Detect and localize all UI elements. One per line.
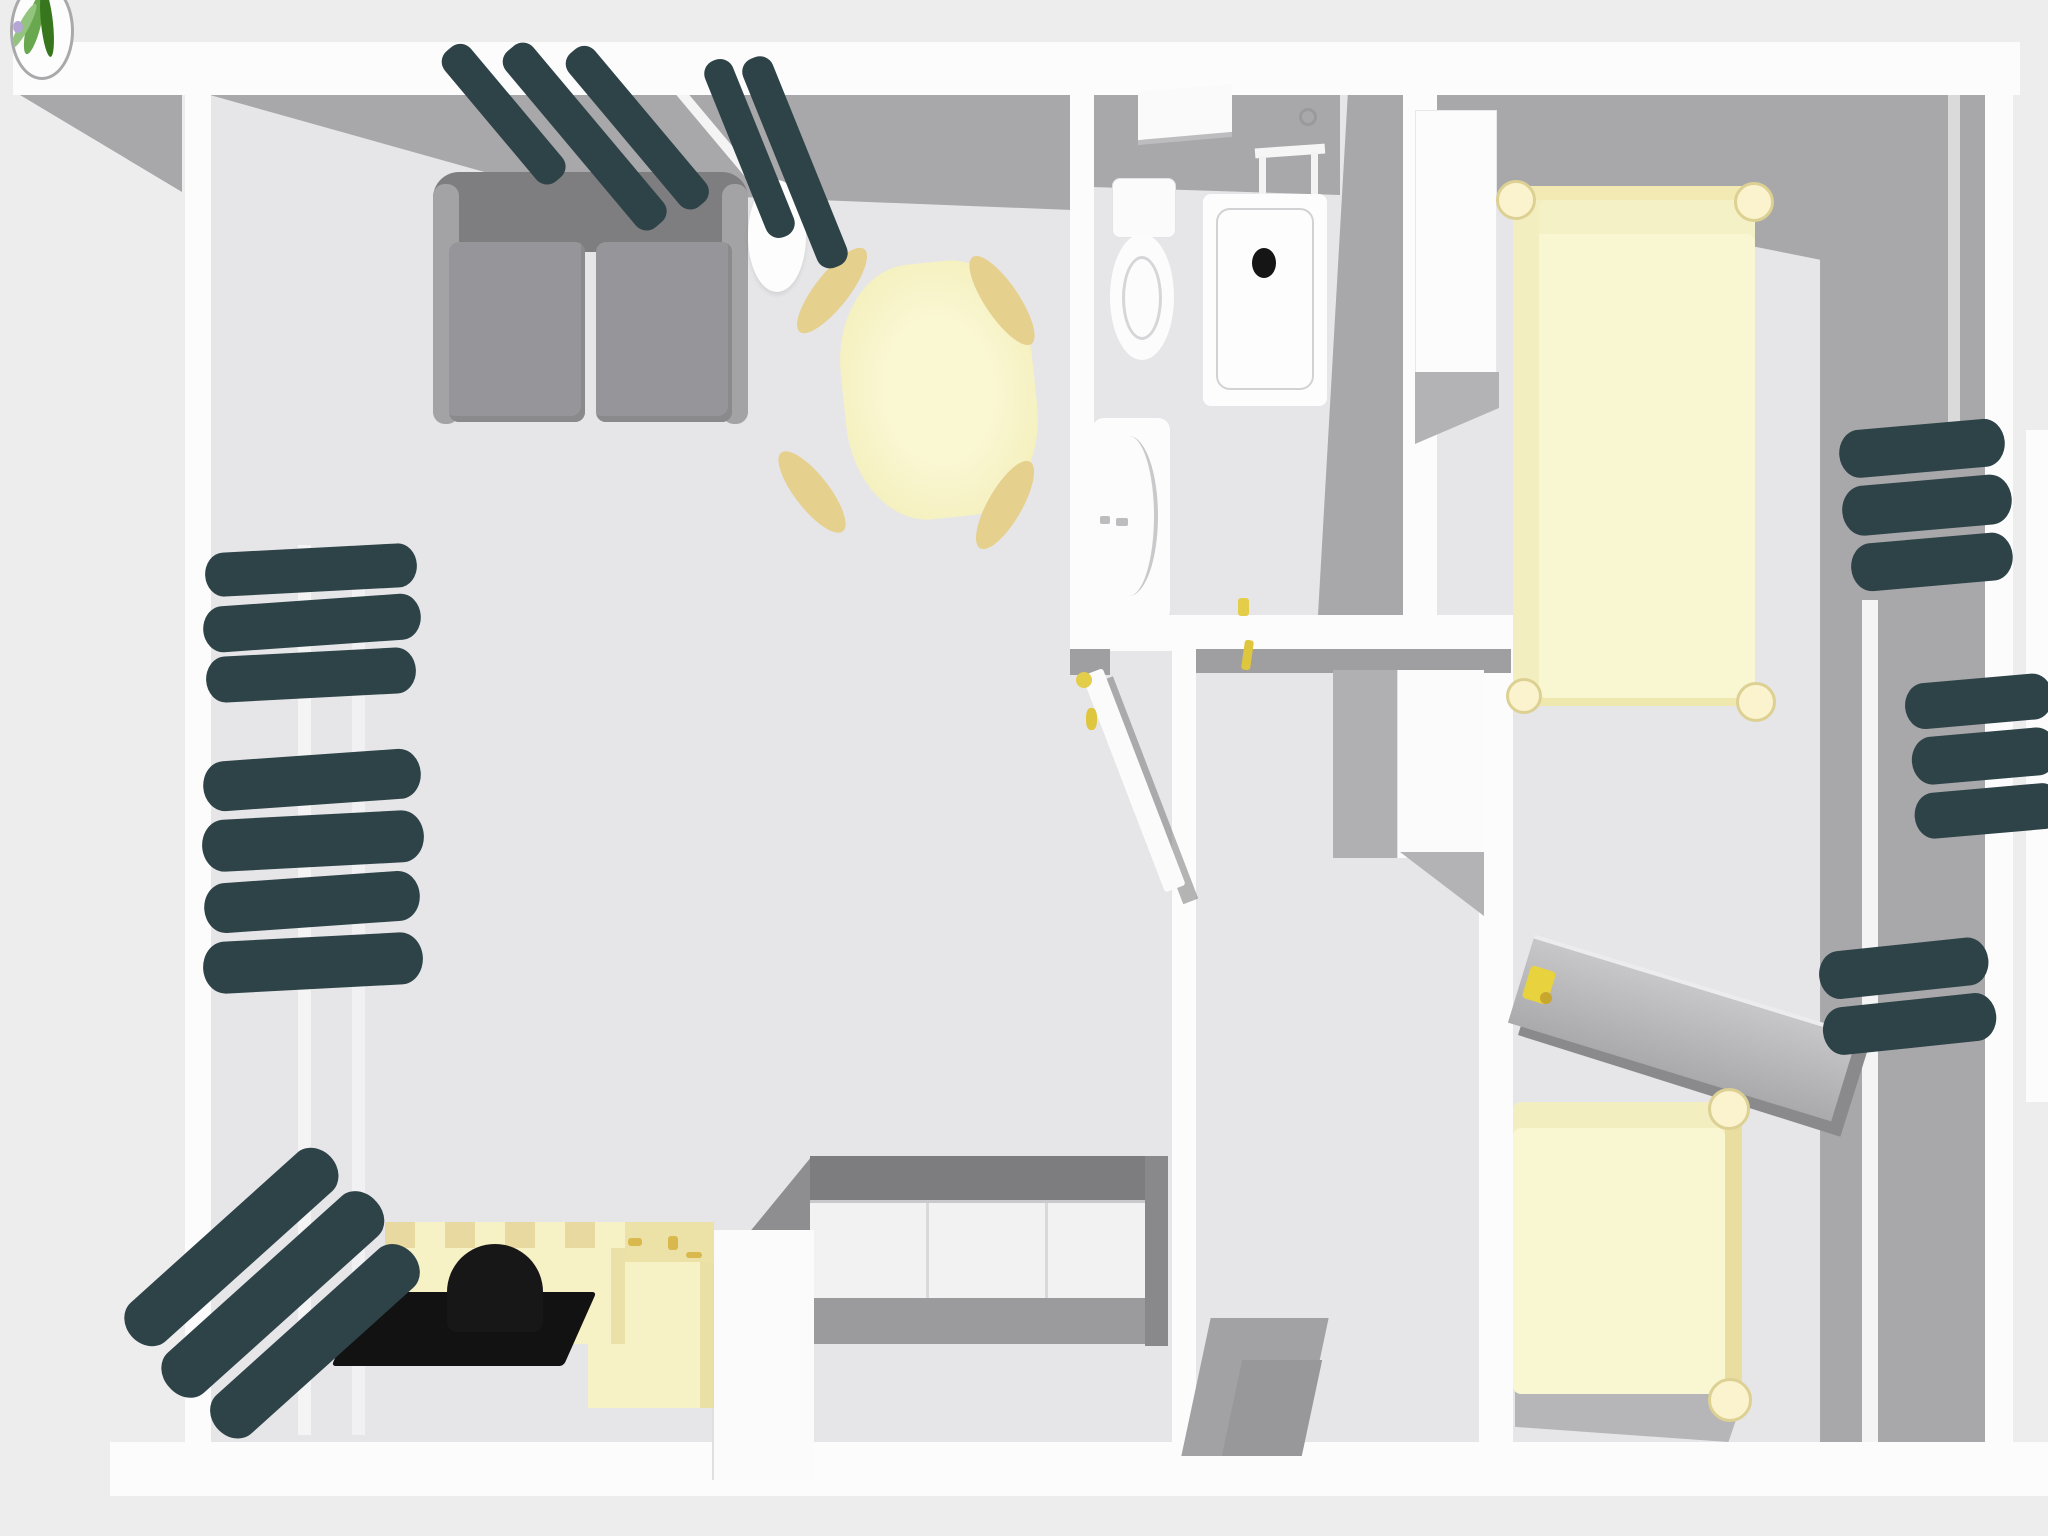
sofa bbox=[433, 172, 748, 428]
curtain-group-left bbox=[202, 755, 424, 1027]
counter-top bbox=[810, 1156, 1168, 1200]
washbasin bbox=[1092, 418, 1170, 622]
counter-end-panel bbox=[1145, 1156, 1168, 1346]
desk-lamp-base bbox=[1540, 992, 1552, 1004]
bed-mattress bbox=[1513, 200, 1755, 698]
brass-tap bbox=[628, 1238, 642, 1246]
bed-mattress bbox=[1513, 1102, 1725, 1394]
toilet-tank bbox=[1112, 178, 1176, 238]
tall-cabinet bbox=[712, 1230, 814, 1480]
towel-stand bbox=[1255, 108, 1327, 200]
counter-side-wedge bbox=[748, 1156, 812, 1234]
sofa-cushion bbox=[596, 242, 732, 422]
bed-single bbox=[1505, 1082, 1755, 1412]
plant-leaf bbox=[37, 0, 56, 57]
bathroom-wall-shelf bbox=[1138, 84, 1232, 140]
door-hinge bbox=[1086, 708, 1097, 730]
door-hinge bbox=[1076, 672, 1092, 688]
toilet bbox=[1108, 178, 1178, 362]
wall-north bbox=[13, 42, 2020, 95]
shower-head bbox=[1299, 108, 1317, 126]
basin-tap bbox=[1116, 518, 1128, 526]
window-mullion bbox=[1948, 95, 1960, 425]
sofa-cushion bbox=[449, 242, 585, 422]
bed-post bbox=[1708, 1088, 1750, 1130]
bed-post bbox=[1708, 1378, 1752, 1422]
curtain-group-left bbox=[203, 548, 423, 708]
floorplan-3d-viewport[interactable] bbox=[0, 0, 2048, 1536]
brass-tap bbox=[686, 1252, 702, 1258]
wardrobe bbox=[1415, 110, 1497, 376]
plant-flower bbox=[13, 21, 23, 33]
stand-leg bbox=[1311, 152, 1318, 196]
curtain-group-right bbox=[1903, 672, 2048, 848]
bed-post bbox=[1734, 182, 1774, 222]
shower-drain bbox=[1252, 248, 1276, 278]
basin-tap bbox=[1100, 516, 1110, 524]
brass-tap bbox=[668, 1236, 678, 1250]
stand-leg bbox=[1259, 156, 1266, 196]
curtain-group-right bbox=[1815, 935, 2002, 1063]
shower bbox=[1203, 194, 1327, 406]
hall-cabinet-front bbox=[1397, 670, 1484, 858]
door-handle bbox=[1238, 598, 1249, 616]
wall-shadow-west-corner bbox=[20, 95, 182, 192]
wall-hall-west bbox=[1172, 649, 1196, 1445]
hall-cabinet bbox=[1333, 670, 1483, 858]
bed-post bbox=[1736, 682, 1776, 722]
counter-doors bbox=[810, 1200, 1168, 1301]
bed-double bbox=[1490, 176, 1780, 726]
wall-bathroom-west bbox=[1070, 90, 1094, 650]
curtain-group-right bbox=[1835, 417, 2023, 617]
wall-south bbox=[110, 1442, 2048, 1496]
toilet-bowl-rim bbox=[1122, 256, 1162, 340]
counter-plinth bbox=[810, 1298, 1168, 1344]
shower-tray-rim bbox=[1216, 208, 1314, 390]
bed-post bbox=[1496, 180, 1536, 220]
bed-post bbox=[1506, 678, 1542, 714]
hall-cabinet-side bbox=[1333, 670, 1397, 858]
